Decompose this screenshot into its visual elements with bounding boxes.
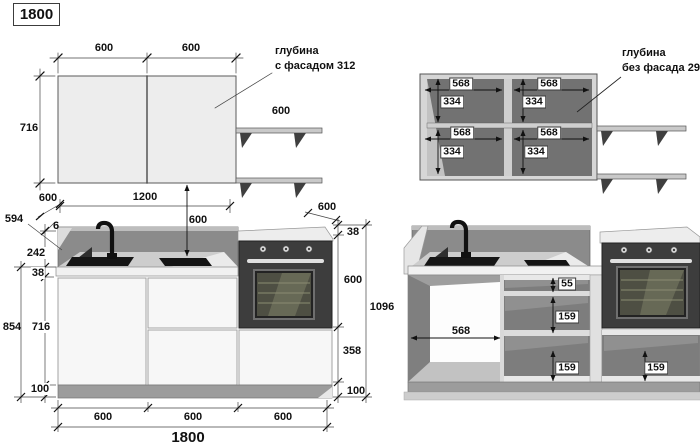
dim-front-height-716: 716 xyxy=(31,321,51,333)
dim-backsplash-242: 242 xyxy=(26,247,46,259)
oven-column-top-open xyxy=(600,227,700,243)
dim-drawer-159-mid: 159 xyxy=(555,311,579,324)
dim-counter-depth-left-600: 600 xyxy=(39,192,57,204)
depth-note-line2: с фасадом 312 xyxy=(275,60,355,72)
oven-column-top xyxy=(238,227,333,241)
dim-inner-height-3: 334 xyxy=(440,146,464,159)
dim-module3-600: 600 xyxy=(274,411,292,423)
dim-inner-height-2: 334 xyxy=(522,96,546,109)
dim-top-edge-6: 6 xyxy=(53,220,59,232)
oven-drawer-front xyxy=(239,330,332,385)
dim-wall-width-left: 600 xyxy=(95,42,113,54)
dim-inner-width-1: 568 xyxy=(449,78,473,91)
dim-right-38: 38 xyxy=(347,226,359,238)
sink xyxy=(66,257,134,266)
dim-shelf-length: 600 xyxy=(272,105,290,117)
dim-counter-thickness-38: 38 xyxy=(31,267,45,279)
plinth xyxy=(58,385,332,398)
oven-glass xyxy=(254,270,314,319)
countertop-edge-open xyxy=(408,266,602,275)
wall-open-shelf-2 xyxy=(597,174,686,194)
dim-lower-zone-358: 358 xyxy=(343,345,361,357)
dim-oven-zone-600: 600 xyxy=(344,274,362,286)
drawer-stack-open xyxy=(500,275,602,382)
dim-inner-height-1: 334 xyxy=(440,96,464,109)
plinth-open xyxy=(408,382,700,392)
cooktop xyxy=(159,258,212,266)
dim-inner-height-4: 334 xyxy=(524,146,548,159)
depth-note-open-line1: глубина xyxy=(622,47,666,59)
dim-counter-depth-594: 594 xyxy=(5,213,23,225)
drawer-front-top xyxy=(148,278,237,328)
dim-open-inner-568: 568 xyxy=(451,325,471,337)
wall-shelf-1 xyxy=(236,128,322,148)
sink-door xyxy=(58,278,146,385)
dim-right-plinth-100: 100 xyxy=(347,385,365,397)
drawer-front-bottom xyxy=(148,330,237,385)
depth-note-open-line2: без фасада 296 xyxy=(622,62,700,74)
oven-glass-open xyxy=(617,267,687,318)
dim-counter-depth-right-600: 600 xyxy=(318,201,336,213)
dim-total-height-1096: 1096 xyxy=(369,301,395,313)
floor-shadow xyxy=(404,392,700,400)
kitchen-drawing-canvas: 1800 600 600 716 глубина с фасадом 312 6… xyxy=(0,0,700,446)
faucet-base xyxy=(107,253,117,259)
dim-total-width-1800: 1800 xyxy=(170,432,205,444)
dim-wall-width-right: 600 xyxy=(182,42,200,54)
dim-plinth-100: 100 xyxy=(30,383,50,395)
dim-height-854: 854 xyxy=(3,321,21,333)
sheet-title-box: 1800 xyxy=(13,3,60,26)
depth-note-line1: глубина xyxy=(275,45,319,57)
oven-handle-open xyxy=(610,259,692,263)
wall-shelf-2 xyxy=(236,178,322,198)
dim-module1-600: 600 xyxy=(94,411,112,423)
dim-wall-gap-1200: 1200 xyxy=(133,191,157,203)
dim-wall-height: 716 xyxy=(20,122,38,134)
sink-open xyxy=(424,257,500,266)
dim-inner-width-2: 568 xyxy=(537,78,561,91)
dim-drawer-159-bottom: 159 xyxy=(555,362,579,375)
dim-wall-to-counter-600: 600 xyxy=(189,214,207,226)
oven-handle xyxy=(247,259,324,263)
faucet-base-open xyxy=(461,252,471,258)
dim-drawer-159-oven: 159 xyxy=(644,362,668,375)
dim-drawer-55: 55 xyxy=(558,278,576,291)
dim-inner-width-4: 568 xyxy=(537,127,561,140)
dim-module2-600: 600 xyxy=(184,411,202,423)
wall-open-shelf-1 xyxy=(597,126,686,146)
backsplash-top-rail xyxy=(58,227,238,231)
backsplash-top-rail-open xyxy=(412,226,590,230)
wall-cabinet-front-view xyxy=(34,53,322,198)
countertop-edge xyxy=(56,267,238,276)
dim-inner-width-3: 568 xyxy=(450,127,474,140)
